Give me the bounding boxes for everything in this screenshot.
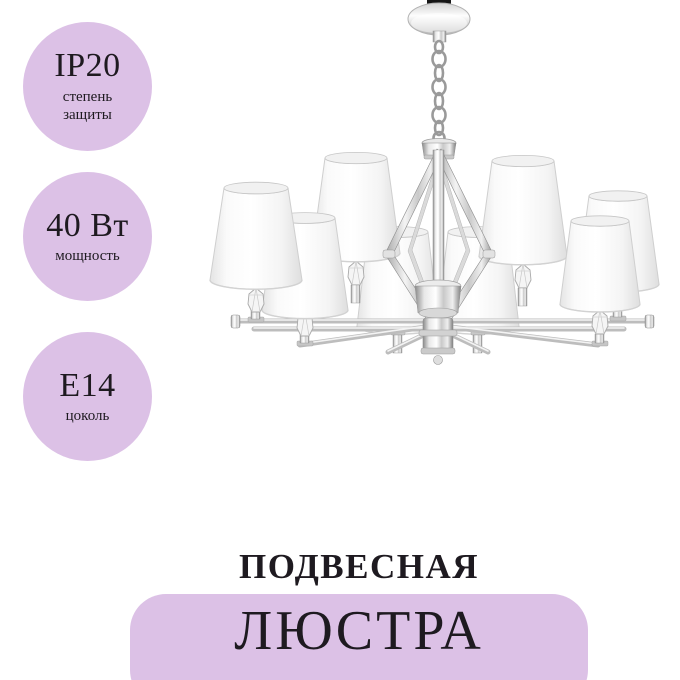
product-name-label: ЛЮСТРА: [234, 600, 484, 662]
canopy: [408, 0, 470, 42]
spec-badge-socket: E14 цоколь: [23, 332, 152, 461]
center-cup: [415, 280, 461, 318]
product-name-banner: ЛЮСТРА: [130, 594, 588, 680]
product-category-label: ПОДВЕСНАЯ: [130, 547, 588, 587]
power-label: мощность: [55, 247, 120, 265]
chain: [433, 41, 446, 144]
lamp-front-right: [560, 216, 640, 346]
protection-value: IP20: [54, 48, 120, 84]
spec-badge-protection: IP20 степень защиты: [23, 22, 152, 151]
power-value: 40 Вт: [46, 208, 129, 244]
hub: [419, 318, 457, 365]
protection-label: степень защиты: [42, 88, 134, 125]
product-card: IP20 степень защиты 40 Вт мощность E14 ц…: [0, 0, 680, 680]
socket-label: цоколь: [66, 407, 110, 425]
socket-value: E14: [59, 368, 115, 404]
spec-badge-power: 40 Вт мощность: [23, 172, 152, 301]
